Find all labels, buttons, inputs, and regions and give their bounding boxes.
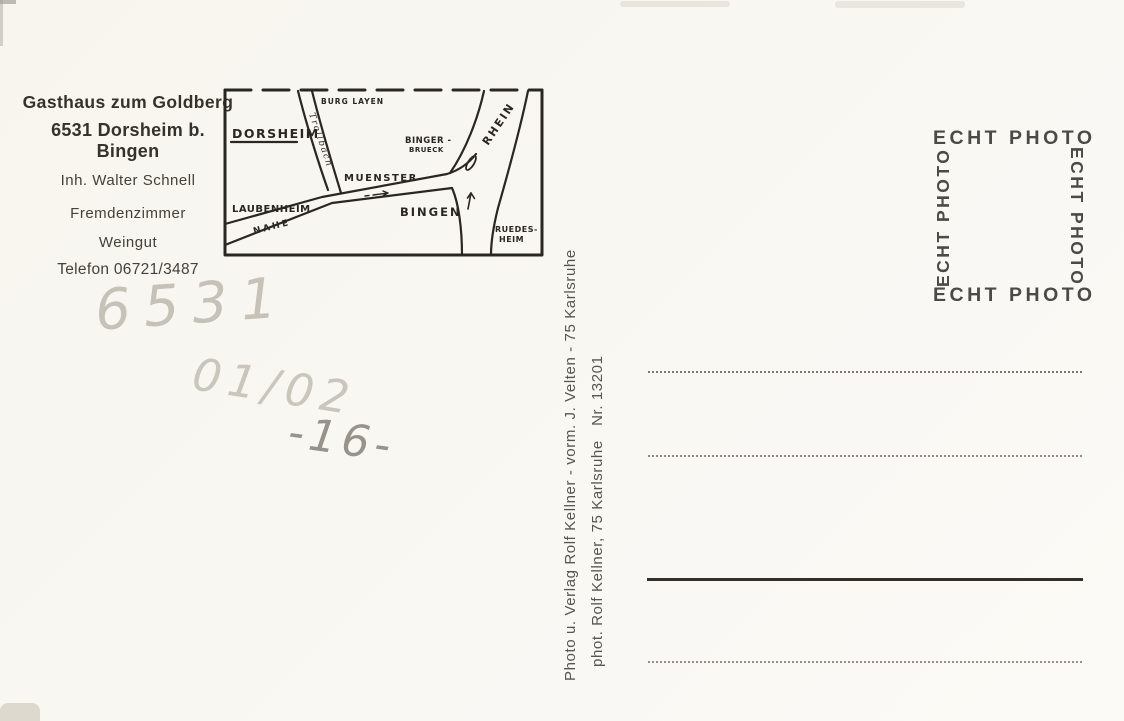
location-map: DORSHEIM BURG LAYEN Trollbach MUENSTER B… — [222, 86, 545, 258]
scan-smudge — [0, 0, 16, 4]
map-label-bingerbrueck-2: BRUECK — [409, 146, 444, 154]
map-label-laubenheim: LAUBENHEIM — [232, 204, 311, 215]
stamp-text-left: ECHT PHOTO — [933, 147, 957, 287]
business-info-block: Gasthaus zum Goldberg 6531 Dorsheim b. B… — [18, 92, 238, 279]
postcard-back: Gasthaus zum Goldberg 6531 Dorsheim b. B… — [0, 0, 1124, 721]
business-name: Gasthaus zum Goldberg — [18, 92, 238, 113]
map-label-ruedesheim-2: HEIM — [499, 235, 524, 244]
stamp-text-right: ECHT PHOTO — [1063, 147, 1087, 287]
pencil-note-2: -16- — [285, 407, 399, 472]
stamp-text-bottom: ECHT PHOTO — [933, 284, 1087, 307]
publisher-line-2: phot. Rolf Kellner, 75 Karlsruhe Nr. 132… — [584, 141, 611, 681]
map-label-ruedesheim-1: RUEDES- — [495, 225, 538, 234]
publisher-line-1: Photo u. Verlag Rolf Kellner - vorm. J. … — [557, 141, 584, 681]
business-service-winery: Weingut — [18, 234, 238, 251]
business-owner: Inh. Walter Schnell — [18, 172, 238, 189]
business-service-rooms: Fremdenzimmer — [18, 205, 238, 222]
scan-smudge — [0, 703, 40, 721]
scan-smudge — [620, 1, 730, 7]
map-label-rhein: RHEIN — [480, 100, 518, 147]
address-line-1 — [648, 371, 1082, 373]
road-direction-arrow — [365, 191, 388, 196]
scan-smudge — [835, 1, 965, 8]
address-line-2 — [648, 455, 1082, 457]
map-label-burg-layen: BURG LAYEN — [321, 97, 384, 106]
map-label-bingen: BINGEN — [400, 205, 462, 219]
echt-photo-stamp-frame: ECHT PHOTO ECHT PHOTO ECHT PHOTO ECHT PH… — [933, 127, 1087, 307]
address-line-4 — [648, 661, 1082, 663]
map-label-dorsheim: DORSHEIM — [232, 126, 320, 141]
business-address: 6531 Dorsheim b. Bingen — [18, 120, 238, 162]
publisher-imprint: Photo u. Verlag Rolf Kellner - vorm. J. … — [557, 141, 613, 681]
north-arrow — [468, 193, 475, 209]
pencil-postal-code: 6531 — [93, 265, 292, 343]
map-label-bingerbrueck-1: BINGER - — [405, 136, 452, 146]
map-label-nahe: NAHE — [252, 218, 291, 237]
scan-smudge — [0, 0, 3, 46]
map-label-muenster: MUENSTER — [344, 173, 418, 184]
address-line-3 — [647, 578, 1083, 581]
